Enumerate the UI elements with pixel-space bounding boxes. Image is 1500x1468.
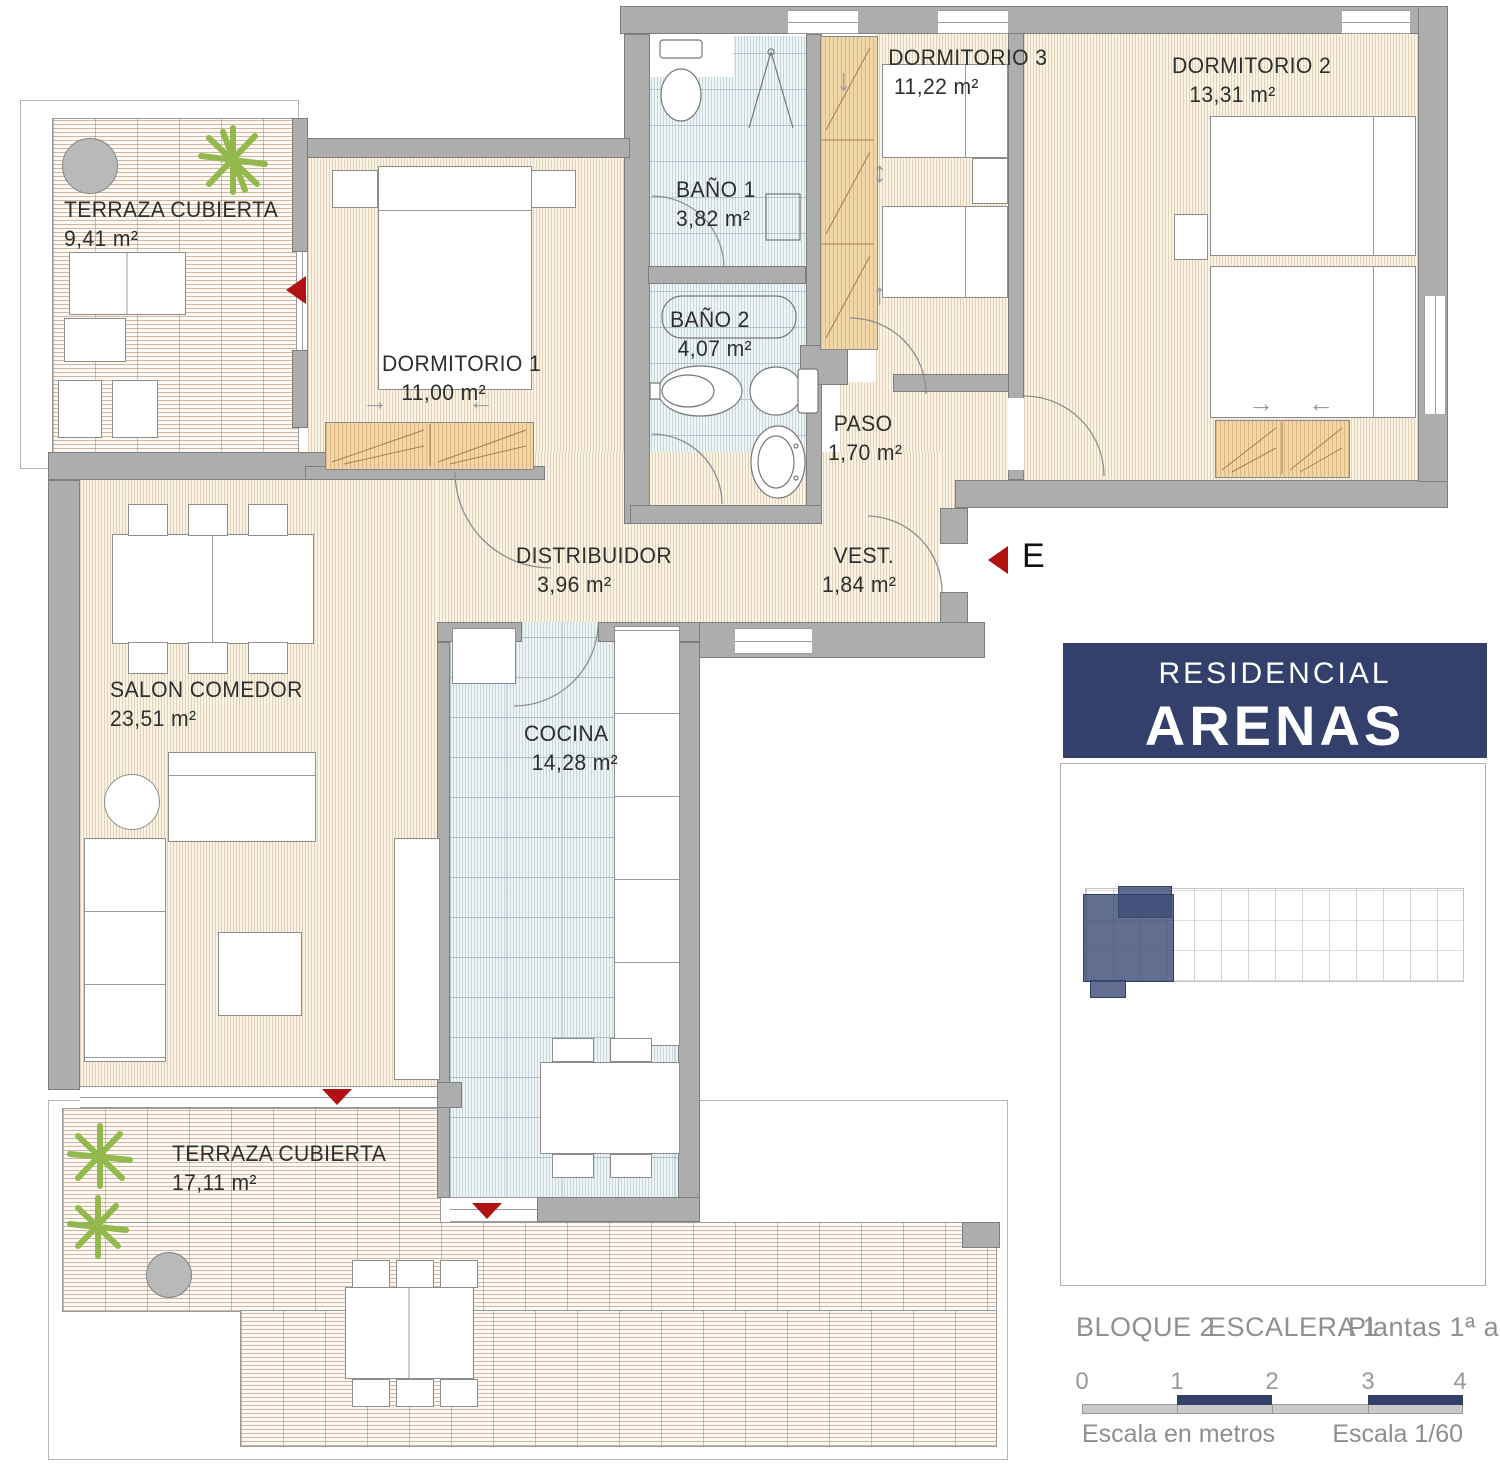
room-label-bano-2: BAÑO 2 4,07 m² xyxy=(670,306,752,363)
salon-chair-1 xyxy=(128,504,168,536)
room-label-paso: PASO 1,70 m² xyxy=(828,410,902,467)
scale-tick-3: 3 xyxy=(1348,1368,1388,1396)
salon-chair-2 xyxy=(188,504,228,536)
wall-under-terrace xyxy=(48,452,335,480)
wall-vest-right-a xyxy=(940,508,968,544)
terrace-bottom-chair-2 xyxy=(396,1260,434,1288)
terrace-bottom-chair-1 xyxy=(352,1260,390,1288)
room-label-bano-1: BAÑO 1 3,82 m² xyxy=(676,176,756,233)
room-area: 1,70 m² xyxy=(828,439,902,468)
room-label-dormitorio-1: DORMITORIO 1 11,00 m² xyxy=(382,350,541,407)
room-area: 14,28 m² xyxy=(524,749,618,778)
room-name: TERRAZA CUBIERTA xyxy=(172,1140,386,1169)
room-label-distribuidor: DISTRIBUIDOR 3,96 m² xyxy=(516,542,672,599)
door-opening-dorm2 xyxy=(1008,398,1024,470)
salon-dining-table xyxy=(112,534,314,644)
arrow-updown-wardrobe: ↕ xyxy=(872,158,887,188)
wall-terrace-dorm1-b xyxy=(292,350,308,428)
wall-bano-left xyxy=(624,34,650,524)
scale-unit-label: Escala en metros xyxy=(1082,1420,1275,1449)
wall-cocina-right xyxy=(678,642,700,1222)
room-area: 3,96 m² xyxy=(516,571,672,600)
terrace-bottom-chair-4 xyxy=(352,1379,390,1407)
terrace-bottom-chair-6 xyxy=(440,1379,478,1407)
salon-sofa xyxy=(168,752,316,842)
swing-arrow-right-dorm2: → xyxy=(1248,390,1274,416)
site-plan-panel xyxy=(1060,763,1486,1286)
salon-l-sofa xyxy=(84,838,166,1062)
site-plan-highlighted-unit xyxy=(1090,980,1126,998)
room-area: 23,51 m² xyxy=(110,705,303,734)
dorm1-nightstand-right xyxy=(530,170,576,208)
room-name: COCINA xyxy=(524,720,618,749)
dorm3-nightstand xyxy=(972,158,1008,204)
arrow-up-wardrobe: ↑ xyxy=(872,280,887,310)
room-label-terraza-superior: TERRAZA CUBIERTA 9,41 m² xyxy=(64,196,278,253)
bano1-niche xyxy=(648,36,733,77)
salon-round-table xyxy=(104,774,160,830)
brand-banner: RESIDENCIAL ARENAS xyxy=(1063,643,1487,758)
wall-bano-bottom xyxy=(630,505,822,524)
swing-arrow-right-dorm1: → xyxy=(362,388,388,414)
wardrobe-dorm1 xyxy=(325,422,534,470)
wall-cocina-bottom xyxy=(537,1197,700,1222)
scale-ratio-label: Escala 1/60 xyxy=(1330,1420,1463,1449)
wall-dorm3-bottom xyxy=(893,374,1024,392)
cocina-chair-2 xyxy=(610,1038,652,1062)
salon-chair-3 xyxy=(248,504,288,536)
room-area: 3,82 m² xyxy=(676,205,756,234)
wall-bano-divider xyxy=(648,266,806,284)
planter-bottom xyxy=(146,1252,192,1298)
terrace-bottom-deck-mid xyxy=(62,1222,997,1312)
scale-segment-3-4 xyxy=(1368,1395,1463,1405)
dorm3-bed-2 xyxy=(882,206,1008,298)
room-name: SALON COMEDOR xyxy=(110,676,303,705)
room-name: DORMITORIO 2 xyxy=(1172,52,1331,81)
wall-deck-stub xyxy=(962,1222,1000,1248)
cocina-chair-1 xyxy=(552,1038,594,1062)
scale-track-tick xyxy=(1272,1404,1273,1414)
room-name: DISTRIBUIDOR xyxy=(516,542,672,571)
wall-dorm1-top xyxy=(295,138,630,158)
dorm2-nightstand xyxy=(1174,214,1208,260)
room-area: 9,41 m² xyxy=(64,225,278,254)
brand-line-1: RESIDENCIAL xyxy=(1063,657,1487,691)
room-label-dormitorio-3: DORMITORIO 3 11,22 m² xyxy=(846,44,1047,101)
terrace-top-side-table xyxy=(64,318,126,362)
room-name: TERRAZA CUBIERTA xyxy=(64,196,278,225)
room-label-terraza-inferior: TERRAZA CUBIERTA 17,11 m² xyxy=(172,1140,386,1197)
terrace-bottom-chair-3 xyxy=(440,1260,478,1288)
room-area: 1,84 m² xyxy=(822,571,896,600)
swing-arrow-left-dorm1: ← xyxy=(468,388,494,414)
room-label-cocina: COCINA 14,28 m² xyxy=(524,720,618,777)
arrow-down-dorm3: ↓ xyxy=(836,66,851,96)
brand-line-2: ARENAS xyxy=(1063,693,1487,758)
cocina-chair-4 xyxy=(610,1154,652,1178)
wall-vest-right-b xyxy=(940,592,968,624)
wall-below-wardrobe xyxy=(800,345,848,385)
terrace-door-marker-icon xyxy=(286,276,306,304)
wardrobe-dorm2 xyxy=(1215,420,1350,478)
window-salon-terrace xyxy=(80,1086,437,1108)
room-area: 17,11 m² xyxy=(172,1169,386,1198)
wall-top-band xyxy=(620,6,1448,34)
entrance-marker-icon xyxy=(988,546,1008,574)
scale-track-tick xyxy=(1177,1404,1178,1414)
window-dorm2-right xyxy=(1424,296,1446,414)
dorm2-bed-1 xyxy=(1210,116,1416,256)
caption-bloque: BLOQUE 2 xyxy=(1076,1312,1215,1343)
entrance-label: E xyxy=(1022,537,1045,576)
room-name: BAÑO 2 xyxy=(670,306,752,335)
wall-salon-corner xyxy=(437,1082,462,1108)
terrace-bottom-table xyxy=(345,1287,474,1379)
room-name: BAÑO 1 xyxy=(676,176,756,205)
room-area: 4,07 m² xyxy=(670,335,752,364)
scale-tick-1: 1 xyxy=(1157,1368,1197,1396)
caption-plantas: Plantas 1ª a 3ª xyxy=(1348,1312,1500,1343)
terrace-top-chair-2 xyxy=(112,380,158,438)
cocina-fridge xyxy=(452,628,516,684)
cocina-terrace-marker-icon xyxy=(472,1203,502,1219)
cocina-chair-3 xyxy=(552,1154,594,1178)
room-area: 11,22 m² xyxy=(846,73,1047,102)
terrace-top-chair-1 xyxy=(58,380,102,438)
site-plan-highlighted-unit xyxy=(1083,894,1174,982)
cocina-island xyxy=(540,1062,680,1154)
wall-terrace-dorm1-a xyxy=(292,118,308,252)
swing-arrow-left-dorm2: ← xyxy=(1308,390,1334,416)
salon-coffee-table xyxy=(218,932,302,1016)
room-label-dormitorio-2: DORMITORIO 2 13,31 m² xyxy=(1172,52,1331,109)
terrace-top-table xyxy=(69,252,186,315)
wall-dorm2-bottom xyxy=(955,480,1448,508)
scale-segment-1-2 xyxy=(1177,1395,1272,1405)
room-name: VEST. xyxy=(822,542,896,571)
scale-tick-2: 2 xyxy=(1252,1368,1292,1396)
terrace-bottom-chair-5 xyxy=(396,1379,434,1407)
planter-top xyxy=(62,138,118,194)
salon-chair-5 xyxy=(188,642,228,674)
window-top-3 xyxy=(1342,10,1410,34)
scale-tick-0: 0 xyxy=(1062,1368,1102,1396)
scale-track-tick xyxy=(1368,1404,1369,1414)
room-name: DORMITORIO 1 xyxy=(382,350,541,379)
window-top-1 xyxy=(788,10,858,34)
scale-tick-4: 4 xyxy=(1440,1368,1480,1396)
room-area: 11,00 m² xyxy=(382,379,541,408)
room-label-salon-comedor: SALON COMEDOR 23,51 m² xyxy=(110,676,303,733)
window-top-2 xyxy=(938,10,1008,34)
cocina-counter xyxy=(614,626,680,1046)
salon-chair-6 xyxy=(248,642,288,674)
room-area: 13,31 m² xyxy=(1172,81,1331,110)
window-vest xyxy=(735,628,812,654)
room-name: DORMITORIO 3 xyxy=(846,44,1047,73)
salon-sideboard xyxy=(394,838,440,1080)
room-name: PASO xyxy=(828,410,902,439)
room-label-vestibulo: VEST. 1,84 m² xyxy=(822,542,896,599)
salon-chair-4 xyxy=(128,642,168,674)
wall-salon-left xyxy=(48,480,80,1090)
salon-terrace-marker-icon xyxy=(322,1089,352,1105)
dorm1-nightstand-left xyxy=(332,170,378,208)
